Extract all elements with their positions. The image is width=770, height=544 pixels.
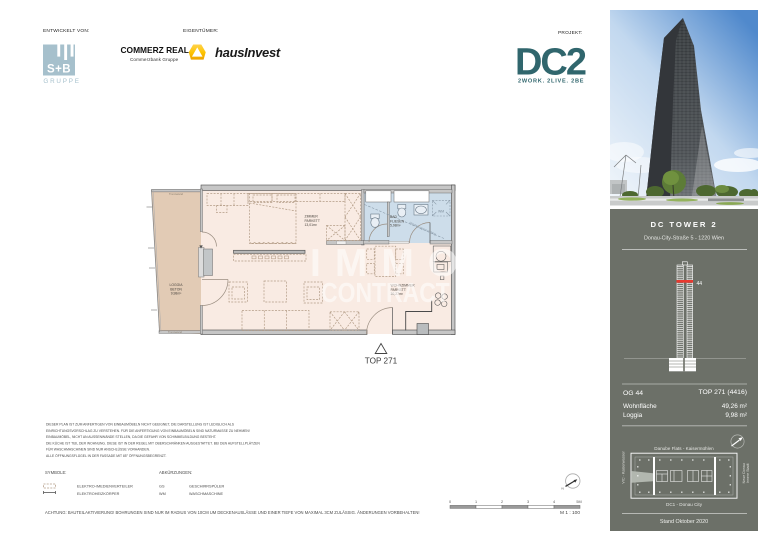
svg-text:13,01m²: 13,01m²: [305, 223, 318, 227]
svg-text:3: 3: [527, 500, 529, 504]
svg-text:0: 0: [449, 500, 451, 504]
svg-text:9,98m²: 9,98m²: [171, 292, 182, 296]
svg-text:Trennwand: Trennwand: [168, 330, 182, 334]
svg-text:5M: 5M: [576, 500, 581, 504]
svg-text:Trennwand: Trennwand: [169, 192, 183, 196]
svg-text:1: 1: [475, 500, 477, 504]
svg-text:WM: WM: [438, 210, 444, 214]
svg-text:44: 44: [697, 280, 703, 286]
svg-text:N: N: [562, 487, 564, 491]
svg-text:2: 2: [501, 500, 503, 504]
svg-text:5,98m²: 5,98m²: [390, 224, 401, 228]
svg-text:4: 4: [553, 500, 555, 504]
svg-text:TOP 271: TOP 271: [365, 357, 398, 366]
